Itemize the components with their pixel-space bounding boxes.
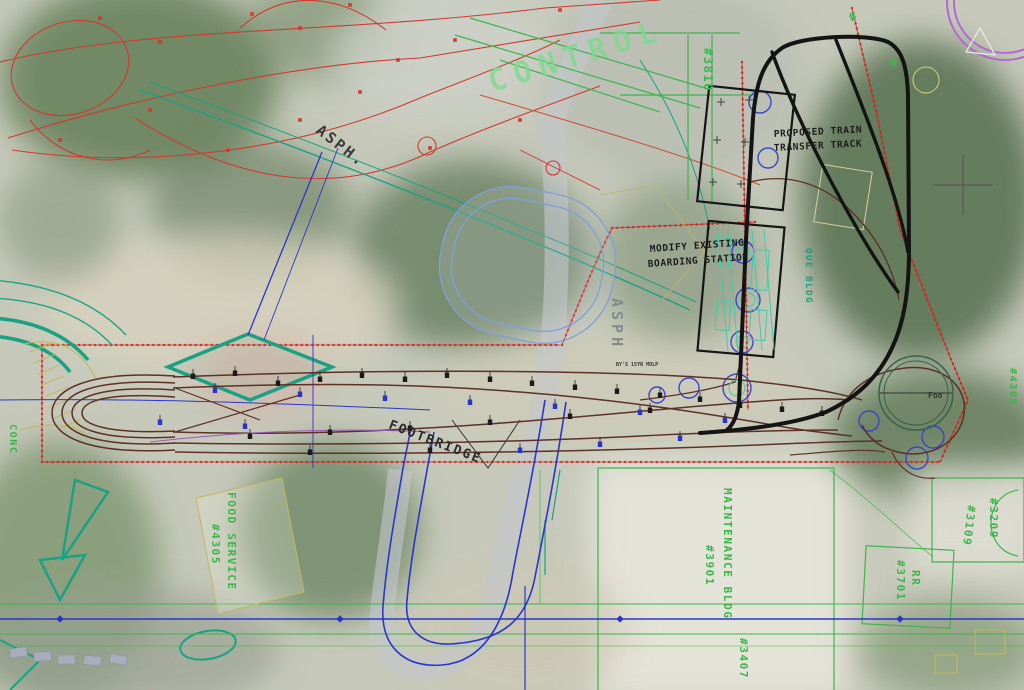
footbridge-ramp-outer bbox=[383, 400, 545, 665]
switch-marker bbox=[360, 368, 364, 378]
switch-marker bbox=[248, 429, 252, 439]
proposed-transfer-track bbox=[700, 37, 909, 433]
label-maintenance-number: #3901 bbox=[703, 545, 716, 586]
switch-marker-blue bbox=[678, 431, 682, 441]
label-bldg-3209: #3209 bbox=[987, 498, 1000, 539]
hash-symbol: # bbox=[846, 8, 861, 25]
switch-marker bbox=[488, 415, 492, 425]
red-square-markers bbox=[58, 3, 562, 152]
label-proposed-track-line1: PROPOSED TRAIN bbox=[774, 124, 863, 140]
switch-marker-blue bbox=[298, 387, 302, 397]
switch-marker bbox=[658, 388, 662, 398]
switch-marker bbox=[308, 445, 312, 455]
site-plan-canvas: PROPOSED TRAIN TRANSFER TRACK MODIFY EXI… bbox=[0, 0, 1024, 690]
label-bldg-3109: #3109 bbox=[960, 505, 978, 547]
label-rr: RR bbox=[909, 570, 922, 586]
olive-linework bbox=[20, 67, 1005, 673]
blue-diagonal bbox=[264, 148, 338, 340]
red-track-curve bbox=[240, 0, 386, 30]
rr-3701-outline bbox=[862, 546, 954, 628]
teal-station-walk bbox=[640, 60, 710, 230]
labels-black: PROPOSED TRAIN TRANSFER TRACK MODIFY EXI… bbox=[313, 121, 943, 467]
label-rr-number: #3701 bbox=[894, 560, 907, 601]
switch-marker-blue bbox=[723, 413, 727, 423]
blue-diagonal bbox=[248, 152, 322, 335]
purple-structure bbox=[947, 0, 1024, 60]
label-food-service-number: #4305 bbox=[209, 524, 222, 565]
switch-marker bbox=[445, 368, 449, 378]
yellow-circle-marker bbox=[913, 67, 939, 93]
switch-marker bbox=[488, 372, 492, 382]
red-coaster-loop bbox=[0, 6, 141, 131]
switch-marker bbox=[568, 409, 572, 419]
olive-shape bbox=[935, 655, 957, 673]
label-food-service: FOOD SERVICE bbox=[225, 492, 238, 591]
amphitheater-arc bbox=[0, 280, 126, 335]
switch-marker bbox=[403, 372, 407, 382]
teal-planter bbox=[178, 626, 238, 663]
switch-marker bbox=[615, 384, 619, 394]
switch-marker-blue bbox=[638, 405, 642, 415]
switch-marker bbox=[328, 425, 332, 435]
olive-tilted-rect bbox=[814, 164, 872, 229]
label-asph-vertical: ASPH bbox=[608, 298, 626, 350]
cad-overlay: PROPOSED TRAIN TRANSFER TRACK MODIFY EXI… bbox=[0, 0, 1024, 690]
label-conc: CONC bbox=[7, 424, 18, 454]
teal-flag-shape bbox=[62, 480, 108, 560]
label-asph-diagonal: ASPH. bbox=[313, 121, 370, 171]
label-que-bldg: QUE BLDG bbox=[803, 248, 813, 304]
survey-crosshair bbox=[933, 155, 993, 215]
amphitheater-arc bbox=[0, 336, 70, 372]
label-maintenance-bldg: MAINTENANCE BLDG bbox=[721, 488, 734, 620]
switch-marker bbox=[573, 380, 577, 390]
carousel-outer-ring bbox=[947, 0, 1024, 60]
switch-marker bbox=[530, 376, 534, 386]
teal-flag-shape bbox=[40, 555, 85, 600]
switch-marker bbox=[780, 402, 784, 412]
parked-cars bbox=[10, 647, 128, 666]
label-proposed-track-line2: TRANSFER TRACK bbox=[774, 138, 863, 154]
switch-marker-blue bbox=[468, 395, 472, 405]
label-modify-station-line2: BOARDING STATION bbox=[647, 252, 749, 270]
switch-marker-blue bbox=[158, 415, 162, 425]
label-bldg-4309: #4309 bbox=[1007, 368, 1018, 406]
proposed-track-diagonal bbox=[772, 52, 898, 292]
red-track-curve bbox=[12, 40, 560, 158]
label-bldg-3810: #3810 bbox=[701, 48, 715, 92]
switch-marker-blue bbox=[243, 419, 247, 429]
switch-marker bbox=[698, 392, 702, 402]
label-survey-note: BY'S 15YR MOLP bbox=[616, 362, 658, 368]
switch-marker bbox=[648, 403, 652, 413]
green-misc-line bbox=[540, 470, 932, 604]
west-balloon-loop bbox=[62, 382, 175, 444]
proposed-track-main-loop bbox=[700, 37, 909, 433]
label-bldg-3407: #3407 bbox=[737, 638, 750, 679]
red-circle-marker bbox=[418, 137, 436, 155]
west-balloon-loop bbox=[52, 375, 175, 451]
label-turntable-note: Foo bbox=[928, 391, 943, 400]
switch-marker-blue bbox=[383, 391, 387, 401]
station-connector-curve bbox=[750, 179, 899, 300]
